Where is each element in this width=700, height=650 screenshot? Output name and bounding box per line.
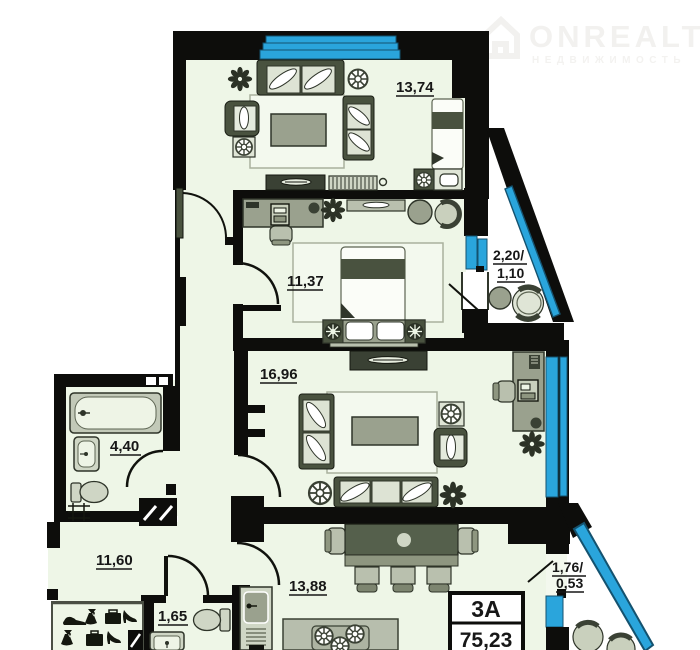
svg-text:ONREALT: ONREALT bbox=[529, 19, 700, 54]
svg-text:13,88: 13,88 bbox=[289, 578, 327, 595]
svg-text:1,76/: 1,76/ bbox=[552, 559, 583, 575]
svg-text:16,96: 16,96 bbox=[260, 366, 298, 383]
svg-text:11,60: 11,60 bbox=[96, 552, 133, 569]
svg-text:1,10: 1,10 bbox=[497, 265, 524, 281]
svg-text:3А: 3А bbox=[471, 596, 500, 622]
svg-text:НЕДВИЖИМОСТЬ: НЕДВИЖИМОСТЬ bbox=[532, 55, 686, 66]
svg-text:2,20/: 2,20/ bbox=[493, 247, 524, 263]
svg-text:13,74: 13,74 bbox=[396, 79, 434, 96]
svg-text:0,53: 0,53 bbox=[556, 575, 583, 591]
svg-text:1,65: 1,65 bbox=[158, 608, 187, 625]
svg-text:4,40: 4,40 bbox=[110, 438, 139, 455]
svg-text:75,23: 75,23 bbox=[460, 629, 513, 650]
svg-text:11,37: 11,37 bbox=[287, 273, 324, 290]
